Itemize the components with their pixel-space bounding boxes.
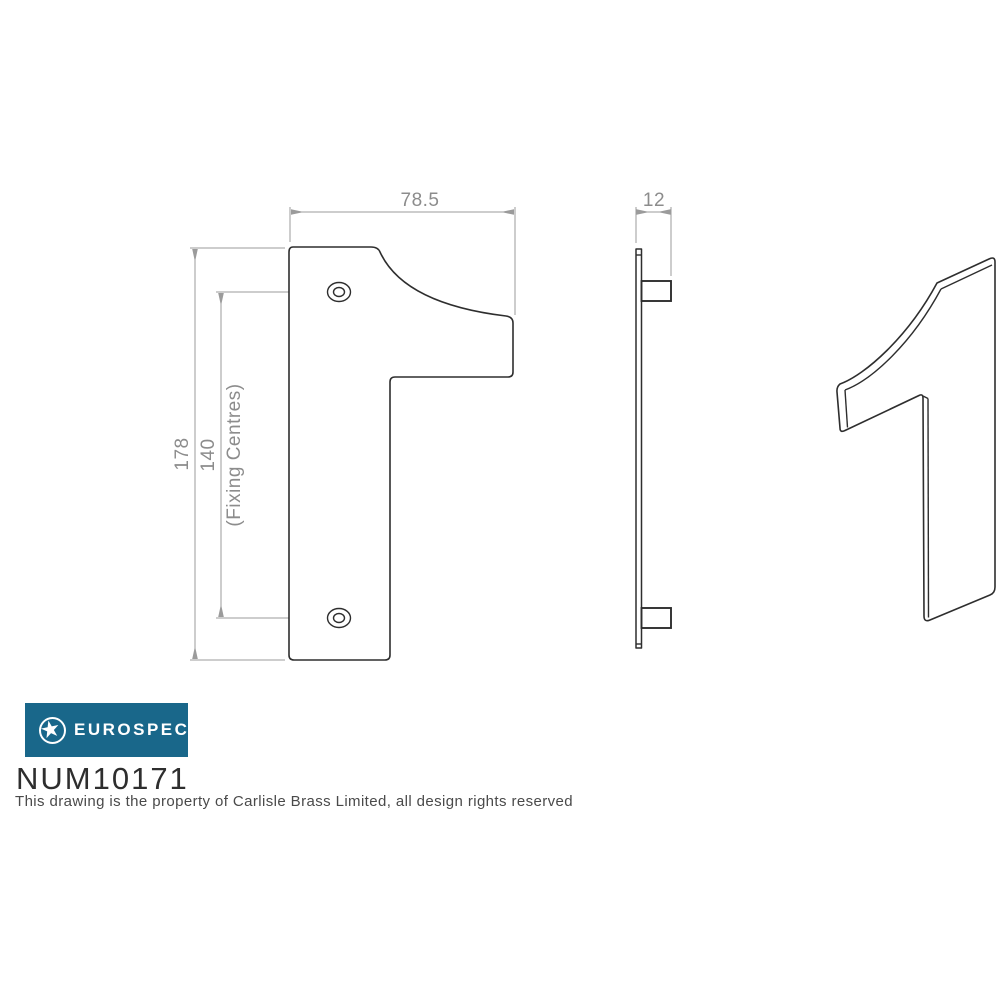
dim-fixing-centres-value: 140 [198,438,219,471]
eurospec-star-icon: ★ [39,717,66,744]
fixing-lug-top [642,281,672,301]
side-view: 12 [636,190,671,648]
front-view-outline [289,247,513,660]
eurospec-brand-text: EUROSPEC [74,720,189,740]
fixing-lug-bottom [642,608,672,628]
dim-height-label: 178 [172,437,193,470]
perspective-outline [837,258,995,621]
dim-thickness-label: 12 [643,190,665,211]
disclaimer-text: This drawing is the property of Carlisle… [15,793,573,810]
side-plate [636,249,642,648]
dim-width-label: 78.5 [401,190,440,211]
technical-drawing: 78.5 178 140 (Fixing Centres) [0,0,1000,700]
drawing-sheet: 78.5 178 140 (Fixing Centres) [0,0,1000,1000]
front-view: 78.5 178 140 (Fixing Centres) [172,190,515,660]
part-number: NUM10171 [16,761,189,797]
dim-fixing-centres-label: (Fixing Centres) [224,383,245,526]
perspective-view [837,258,995,621]
eurospec-logo: ★ EUROSPEC [25,703,188,757]
